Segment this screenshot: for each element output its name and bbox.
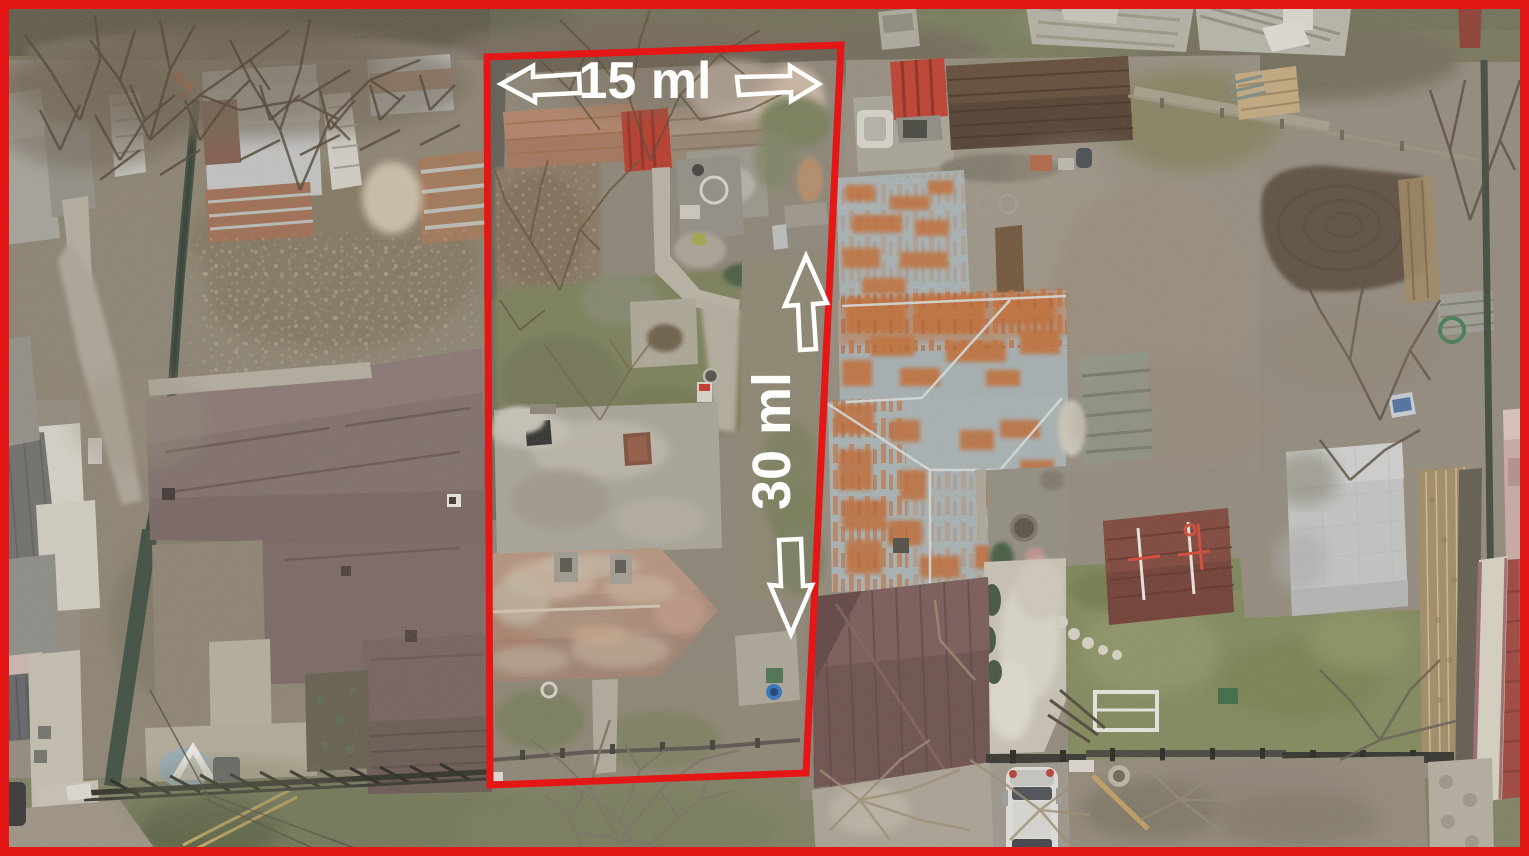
svg-text:15 ml: 15 ml <box>579 52 712 110</box>
svg-text:30 ml: 30 ml <box>742 372 802 510</box>
